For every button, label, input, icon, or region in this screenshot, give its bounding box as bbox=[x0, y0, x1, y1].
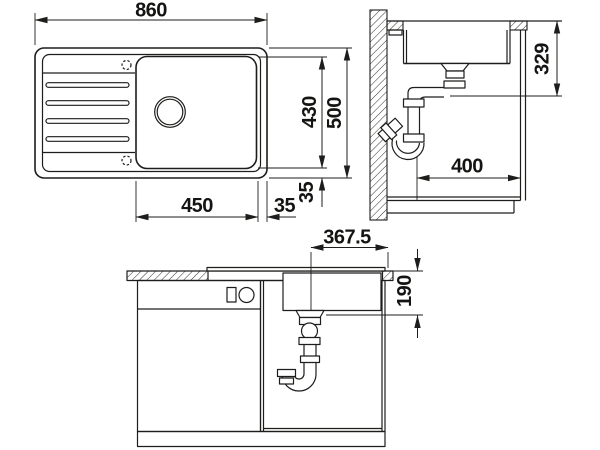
worktop-hatch-left bbox=[128, 272, 208, 281]
drain-pipe-side bbox=[404, 88, 445, 143]
dim-label-450: 450 bbox=[181, 195, 213, 217]
drainboard-rib bbox=[46, 83, 129, 88]
dim-label-400: 400 bbox=[451, 156, 483, 178]
bowl-plan bbox=[136, 57, 257, 169]
sink-fixing-clip bbox=[389, 30, 402, 35]
dim-cabinet-width: 400 bbox=[417, 156, 521, 201]
cleanout-ring bbox=[278, 370, 296, 377]
dim-label-35-right: 35 bbox=[274, 195, 296, 217]
plinth bbox=[138, 432, 386, 447]
drainboard-rib bbox=[46, 101, 129, 106]
appliance-knob bbox=[239, 288, 254, 303]
cleanout-ring bbox=[280, 378, 294, 384]
tap-hole-top bbox=[122, 61, 131, 70]
dim-label-500: 500 bbox=[324, 97, 346, 129]
dim-gap-bottom: 35 bbox=[296, 178, 322, 207]
sink-rim-front bbox=[207, 268, 385, 272]
worktop-section-left bbox=[387, 21, 403, 30]
side-view: 329 400 bbox=[370, 10, 562, 220]
dim-label-35-bottom: 35 bbox=[296, 182, 318, 204]
pipe-union-nut bbox=[404, 134, 425, 142]
trap-slip-nut bbox=[301, 356, 320, 363]
drawing-sheet: 860 500 430 35 450 bbox=[0, 0, 600, 450]
dim-label-367-5: 367.5 bbox=[323, 227, 371, 249]
dim-label-329: 329 bbox=[532, 43, 554, 75]
pipe-union-nut bbox=[404, 99, 425, 107]
appliance-switch bbox=[227, 288, 236, 303]
sink-dimension-drawing: 860 500 430 35 450 bbox=[0, 0, 600, 450]
wall-section bbox=[370, 10, 387, 220]
bowl-section bbox=[404, 30, 511, 64]
drainboard-rib bbox=[46, 119, 129, 124]
strainer-front bbox=[296, 311, 324, 345]
dim-bowl-length: 450 bbox=[136, 181, 258, 222]
trap-front bbox=[278, 345, 320, 392]
outlet-elbow bbox=[302, 323, 318, 339]
dim-overall-width: 860 bbox=[35, 0, 267, 45]
drainboard-rib bbox=[46, 137, 129, 142]
dim-gap-right: 35 bbox=[267, 181, 296, 222]
worktop-hatch-right bbox=[383, 272, 393, 281]
strainer-side bbox=[441, 64, 469, 89]
dim-inner-depth: 430 bbox=[258, 57, 327, 168]
bowl-front bbox=[283, 273, 381, 311]
tap-hole-bottom bbox=[122, 156, 131, 165]
dim-label-430: 430 bbox=[299, 96, 321, 128]
dim-outlet-depth: 329 bbox=[450, 21, 562, 96]
dim-label-860: 860 bbox=[135, 0, 167, 22]
dim-label-190: 190 bbox=[394, 275, 416, 307]
front-view: 367.5 190 bbox=[127, 227, 423, 447]
drainboard bbox=[43, 73, 136, 153]
plan-view: 860 500 430 35 450 bbox=[35, 0, 352, 222]
left-cabinet-front bbox=[138, 281, 261, 432]
worktop-section-right bbox=[510, 21, 527, 30]
